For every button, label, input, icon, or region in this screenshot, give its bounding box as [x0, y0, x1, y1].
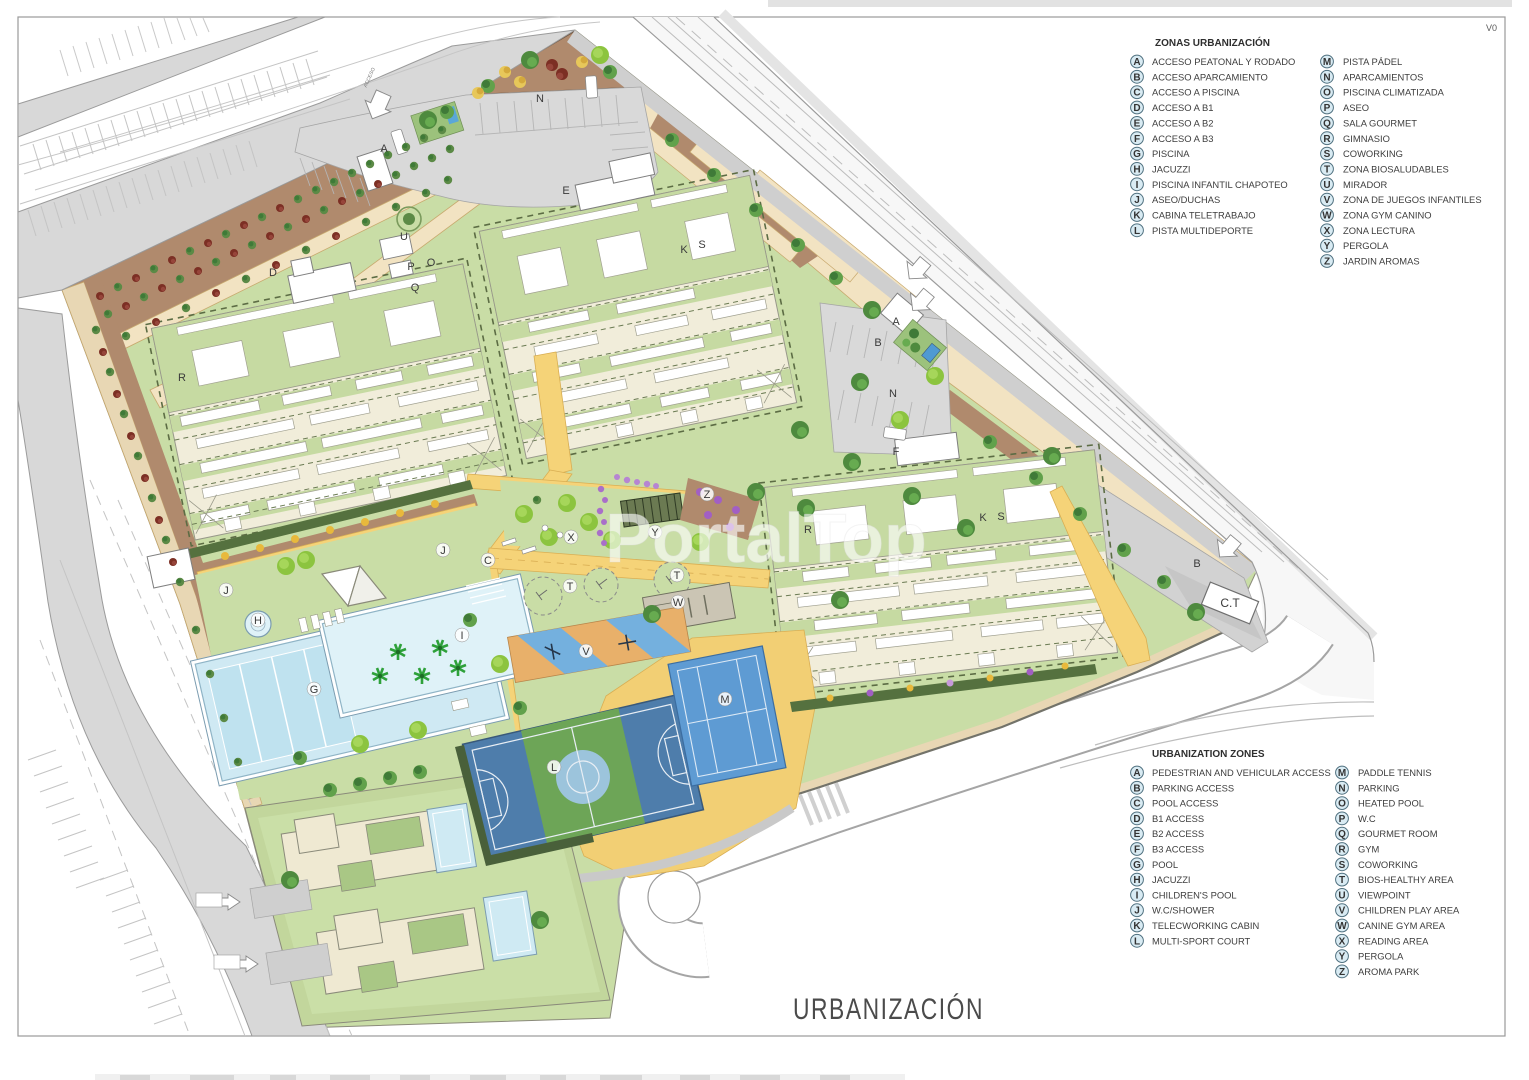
svg-text:N: N	[1338, 783, 1345, 794]
svg-text:J: J	[223, 585, 229, 597]
svg-text:PISCINA: PISCINA	[1152, 148, 1190, 159]
svg-text:COWORKING: COWORKING	[1343, 148, 1403, 159]
svg-text:ZONA LECTURA: ZONA LECTURA	[1343, 225, 1416, 236]
svg-text:L: L	[1134, 936, 1140, 947]
svg-text:BIOS-HEALTHY AREA: BIOS-HEALTHY AREA	[1358, 874, 1454, 885]
svg-text:K: K	[1133, 211, 1141, 222]
svg-text:S: S	[698, 239, 705, 251]
svg-text:D: D	[1133, 814, 1140, 825]
svg-text:A: A	[892, 316, 900, 328]
svg-text:V: V	[1324, 195, 1331, 206]
svg-text:PISCINA INFANTIL CHAPOTEO: PISCINA INFANTIL CHAPOTEO	[1152, 179, 1288, 190]
svg-text:P: P	[1339, 814, 1346, 825]
svg-text:K: K	[680, 244, 688, 256]
svg-text:B2 ACCESS: B2 ACCESS	[1152, 828, 1204, 839]
svg-text:Y: Y	[1339, 952, 1346, 963]
svg-text:PARKING ACCESS: PARKING ACCESS	[1152, 782, 1234, 793]
svg-text:ZONA GYM CANINO: ZONA GYM CANINO	[1343, 210, 1432, 221]
svg-text:G: G	[1133, 860, 1141, 871]
svg-text:CHILDREN PLAY AREA: CHILDREN PLAY AREA	[1358, 905, 1460, 916]
svg-text:PERGOLA: PERGOLA	[1343, 240, 1389, 251]
svg-text:ACCESO A PISCINA: ACCESO A PISCINA	[1152, 87, 1240, 98]
svg-text:N: N	[1323, 72, 1330, 83]
svg-text:S: S	[1339, 860, 1346, 871]
svg-text:B: B	[1133, 783, 1140, 794]
svg-text:ASEO/DUCHAS: ASEO/DUCHAS	[1152, 194, 1220, 205]
svg-text:PEDESTRIAN AND VEHICULAR ACCES: PEDESTRIAN AND VEHICULAR ACCESS	[1152, 767, 1331, 778]
svg-text:T: T	[1324, 164, 1330, 175]
svg-text:URBANIZATION ZONES: URBANIZATION ZONES	[1152, 749, 1265, 760]
svg-text:V: V	[582, 646, 590, 658]
svg-text:O: O	[427, 257, 436, 269]
svg-text:E: E	[1134, 829, 1141, 840]
svg-text:B1 ACCESS: B1 ACCESS	[1152, 813, 1204, 824]
svg-text:C: C	[1133, 88, 1140, 99]
svg-text:L: L	[551, 762, 557, 774]
svg-text:W: W	[1322, 211, 1332, 222]
svg-text:ZONA BIOSALUDABLES: ZONA BIOSALUDABLES	[1343, 163, 1449, 174]
svg-text:O: O	[1338, 799, 1346, 810]
svg-text:I: I	[460, 630, 463, 642]
svg-text:V0: V0	[1486, 23, 1497, 33]
svg-text:J: J	[1134, 906, 1140, 917]
svg-text:G: G	[310, 684, 319, 696]
svg-text:U: U	[1323, 180, 1330, 191]
svg-text:N: N	[889, 388, 897, 400]
svg-text:H: H	[254, 615, 262, 627]
svg-text:Q: Q	[1323, 118, 1331, 129]
svg-text:E: E	[562, 185, 569, 197]
svg-text:P: P	[407, 261, 414, 273]
svg-text:CANINE GYM AREA: CANINE GYM AREA	[1358, 920, 1446, 931]
svg-text:ACCESO A B1: ACCESO A B1	[1152, 102, 1214, 113]
svg-text:ACCESO PEATONAL Y RODADO: ACCESO PEATONAL Y RODADO	[1152, 56, 1295, 67]
svg-text:B3 ACCESS: B3 ACCESS	[1152, 844, 1204, 855]
svg-text:Z: Z	[1339, 967, 1345, 978]
svg-text:CHILDREN'S POOL: CHILDREN'S POOL	[1152, 889, 1237, 900]
svg-text:TELECWORKING CABIN: TELECWORKING CABIN	[1152, 920, 1259, 931]
svg-text:C: C	[484, 555, 492, 567]
svg-text:J: J	[1134, 195, 1140, 206]
svg-text:ZONAS URBANIZACIÓN: ZONAS URBANIZACIÓN	[1155, 36, 1270, 49]
svg-text:G: G	[1133, 149, 1141, 160]
svg-text:CABINA TELETRABAJO: CABINA TELETRABAJO	[1152, 210, 1256, 221]
svg-text:SALA GOURMET: SALA GOURMET	[1343, 117, 1417, 128]
svg-text:D: D	[269, 267, 277, 279]
svg-text:A: A	[1133, 768, 1140, 779]
svg-text:F: F	[1134, 845, 1140, 856]
svg-text:POOL: POOL	[1152, 859, 1178, 870]
svg-text:W: W	[1337, 921, 1347, 932]
svg-text:JACUZZI: JACUZZI	[1152, 874, 1191, 885]
svg-text:U: U	[400, 231, 408, 243]
svg-text:W.C: W.C	[1358, 813, 1376, 824]
svg-text:PARKING: PARKING	[1358, 782, 1400, 793]
svg-text:N: N	[536, 93, 544, 105]
svg-text:GOURMET ROOM: GOURMET ROOM	[1358, 828, 1438, 839]
svg-text:HEATED POOL: HEATED POOL	[1358, 798, 1424, 809]
svg-text:B: B	[874, 337, 881, 349]
svg-text:PISCINA CLIMATIZADA: PISCINA CLIMATIZADA	[1343, 87, 1445, 98]
svg-text:GYM: GYM	[1358, 844, 1380, 855]
svg-text:U: U	[1338, 890, 1345, 901]
svg-text:K: K	[1133, 921, 1141, 932]
svg-text:J: J	[440, 545, 446, 557]
svg-text:E: E	[1134, 118, 1141, 129]
svg-text:C.T: C.T	[1220, 596, 1240, 610]
svg-text:H: H	[1133, 164, 1140, 175]
svg-text:W.C/SHOWER: W.C/SHOWER	[1152, 905, 1215, 916]
svg-text:O: O	[1323, 88, 1331, 99]
svg-text:PISTA MULTIDEPORTE: PISTA MULTIDEPORTE	[1152, 225, 1253, 236]
svg-text:D: D	[1133, 103, 1140, 114]
svg-text:URBANIZACIÓN: URBANIZACIÓN	[793, 993, 984, 1026]
svg-text:PADDLE TENNIS: PADDLE TENNIS	[1358, 767, 1432, 778]
svg-text:B: B	[1133, 72, 1140, 83]
svg-text:X: X	[567, 532, 575, 544]
svg-text:S: S	[997, 511, 1004, 523]
svg-text:COWORKING: COWORKING	[1358, 859, 1418, 870]
svg-text:Q: Q	[411, 282, 420, 294]
svg-text:X: X	[1324, 226, 1331, 237]
svg-text:Z: Z	[1324, 257, 1330, 268]
svg-text:F: F	[893, 446, 900, 458]
svg-text:I: I	[1136, 180, 1139, 191]
svg-text:ACCESO A B2: ACCESO A B2	[1152, 117, 1214, 128]
svg-text:C: C	[1133, 799, 1140, 810]
svg-text:PISTA PÁDEL: PISTA PÁDEL	[1343, 56, 1402, 67]
svg-text:L: L	[1134, 226, 1140, 237]
svg-text:JARDIN AROMAS: JARDIN AROMAS	[1343, 256, 1420, 267]
svg-text:R: R	[1323, 134, 1331, 145]
svg-text:R: R	[178, 372, 186, 384]
svg-text:R: R	[1338, 845, 1346, 856]
svg-text:Y: Y	[1324, 241, 1331, 252]
svg-text:T: T	[567, 581, 574, 593]
svg-text:ASEO: ASEO	[1343, 102, 1369, 113]
svg-text:MULTI-SPORT COURT: MULTI-SPORT COURT	[1152, 935, 1251, 946]
svg-text:T: T	[1339, 875, 1345, 886]
svg-text:ACCESO A B3: ACCESO A B3	[1152, 133, 1214, 144]
svg-text:MIRADOR: MIRADOR	[1343, 179, 1388, 190]
svg-text:READING AREA: READING AREA	[1358, 935, 1429, 946]
svg-text:A: A	[380, 143, 388, 155]
svg-text:M: M	[720, 694, 729, 706]
svg-text:X: X	[1339, 936, 1346, 947]
svg-text:A: A	[1133, 57, 1140, 68]
svg-text:PERGOLA: PERGOLA	[1358, 951, 1404, 962]
svg-text:ACCESO APARCAMIENTO: ACCESO APARCAMIENTO	[1152, 71, 1268, 82]
svg-text:PortalTop: PortalTop	[605, 499, 926, 577]
svg-text:JACUZZI: JACUZZI	[1152, 163, 1191, 174]
svg-text:M: M	[1323, 57, 1331, 68]
svg-text:M: M	[1338, 768, 1346, 779]
svg-text:P: P	[1324, 103, 1331, 114]
svg-text:H: H	[1133, 875, 1140, 886]
svg-text:F: F	[1134, 134, 1140, 145]
svg-text:K: K	[979, 512, 987, 524]
svg-text:B: B	[1193, 558, 1200, 570]
svg-text:I: I	[1136, 890, 1139, 901]
svg-text:VIEWPOINT: VIEWPOINT	[1358, 889, 1411, 900]
svg-text:GIMNASIO: GIMNASIO	[1343, 133, 1390, 144]
svg-text:POOL ACCESS: POOL ACCESS	[1152, 798, 1218, 809]
svg-text:W: W	[673, 597, 684, 609]
svg-text:AROMA PARK: AROMA PARK	[1358, 966, 1420, 977]
svg-text:ZONA DE JUEGOS INFANTILES: ZONA DE JUEGOS INFANTILES	[1343, 194, 1482, 205]
svg-text:V: V	[1339, 906, 1346, 917]
svg-text:S: S	[1324, 149, 1331, 160]
svg-text:APARCAMIENTOS: APARCAMIENTOS	[1343, 71, 1423, 82]
svg-text:Q: Q	[1338, 829, 1346, 840]
